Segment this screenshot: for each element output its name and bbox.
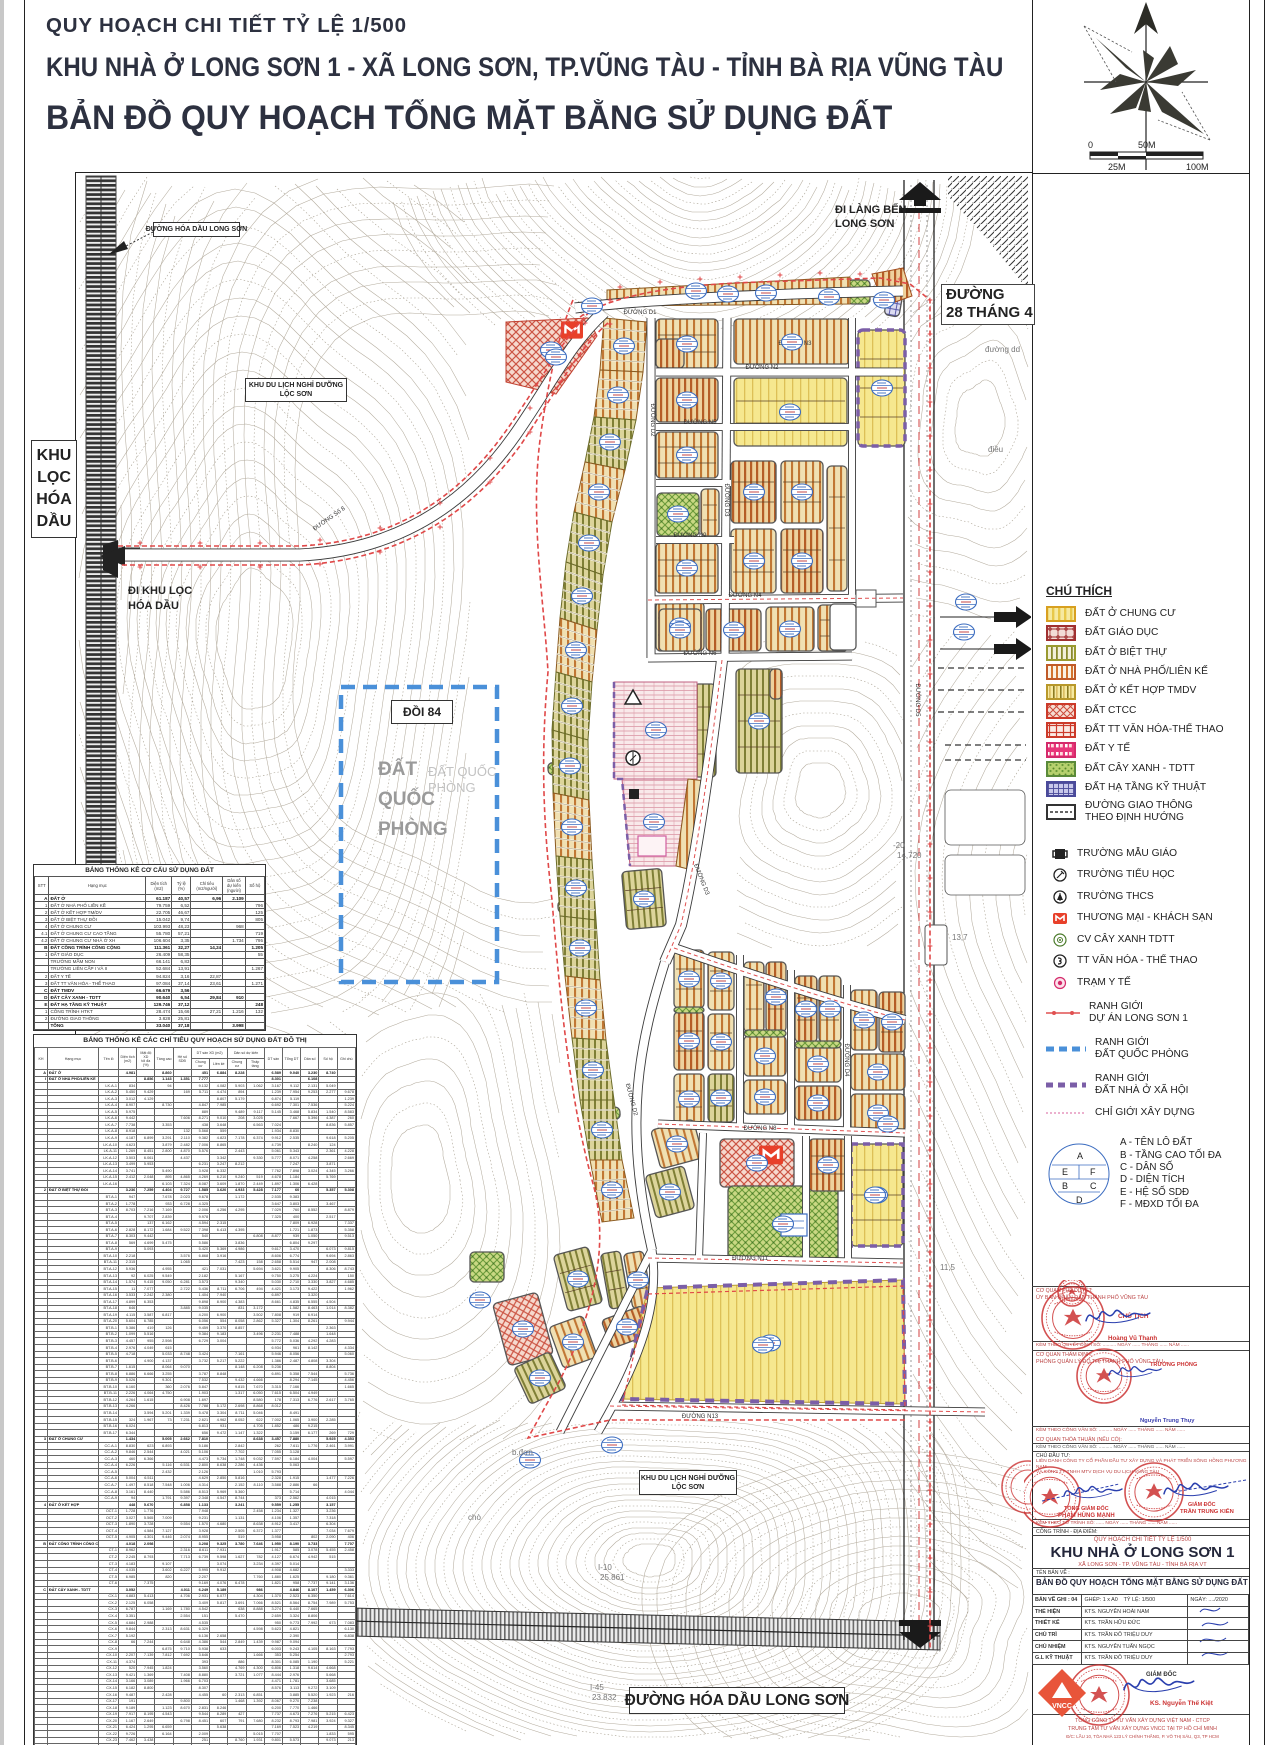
svg-text:ĐƯỜNG N4: ĐƯỜNG N4 (729, 592, 763, 599)
svg-text:ĐƯỜNG D4: ĐƯỜNG D4 (843, 1044, 850, 1078)
svg-text:11,5: 11,5 (940, 1263, 956, 1272)
svg-text:ĐƯỜNG N6: ĐƯỜNG N6 (684, 650, 718, 657)
svg-text:chò: chò (468, 1513, 481, 1522)
svg-text:F: F (1090, 1167, 1096, 1177)
svg-text:25M: 25M (1108, 162, 1126, 172)
svg-text:đường dd: đường dd (985, 345, 1020, 354)
svg-text:I-10: I-10 (598, 1563, 612, 1572)
svg-text:ĐƯỜNG N11: ĐƯỜNG N11 (732, 1255, 768, 1262)
svg-text:ĐƯỜNG N9: ĐƯỜNG N9 (674, 532, 708, 539)
svg-text:ĐƯỜNG Số 8: ĐƯỜNG Số 8 (312, 505, 347, 533)
svg-text:ĐƯỜNG D5: ĐƯỜNG D5 (914, 684, 921, 718)
svg-text:25.861: 25.861 (600, 1573, 625, 1582)
svg-text:100M: 100M (1186, 162, 1209, 172)
svg-text:ĐƯỜNG N13: ĐƯỜNG N13 (682, 1413, 719, 1420)
svg-text:điều: điều (988, 445, 1003, 454)
svg-text:ĐƯỜNG D1: ĐƯỜNG D1 (624, 309, 658, 316)
svg-text:ĐƯỜNG D3: ĐƯỜNG D3 (723, 484, 730, 518)
svg-text:ĐƯỜNG N2: ĐƯỜNG N2 (746, 364, 780, 371)
svg-text:13,7: 13,7 (952, 933, 968, 942)
svg-text:A: A (1077, 1151, 1083, 1161)
svg-text:ĐƯỜNG N5: ĐƯỜNG N5 (684, 419, 718, 426)
svg-text:23.832: 23.832 (592, 1693, 617, 1702)
svg-text:VNCC: VNCC (1052, 1703, 1072, 1710)
svg-text:ĐƯỜNG N8: ĐƯỜNG N8 (744, 1125, 778, 1132)
svg-text:14,720: 14,720 (897, 851, 922, 860)
svg-text:E: E (1062, 1167, 1068, 1177)
svg-text:50M: 50M (1138, 140, 1156, 150)
svg-text:0: 0 (1088, 140, 1093, 150)
svg-text:b.đơn: b.đơn (512, 1448, 533, 1457)
svg-text:I-45: I-45 (590, 1683, 604, 1692)
svg-text:ĐƯỜNG D2: ĐƯỜNG D2 (649, 404, 656, 438)
svg-text:-20: -20 (893, 841, 905, 850)
svg-text:D: D (1076, 1195, 1083, 1205)
svg-text:C: C (1090, 1181, 1097, 1191)
svg-text:B: B (1062, 1181, 1068, 1191)
